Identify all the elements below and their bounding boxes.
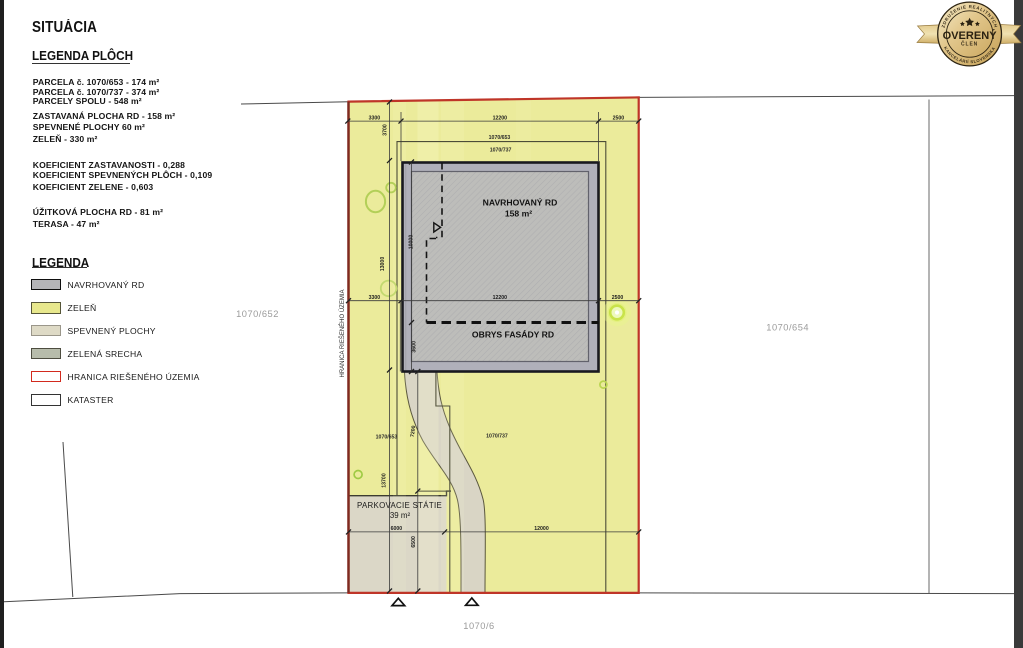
svg-text:1070/654: 1070/654 (766, 322, 809, 332)
svg-text:1070/737: 1070/737 (486, 433, 508, 439)
svg-text:PARKOVACIE STÁTIE: PARKOVACIE STÁTIE (357, 501, 442, 510)
svg-text:39 m²: 39 m² (390, 511, 411, 520)
svg-text:3300: 3300 (369, 295, 381, 301)
svg-text:12200: 12200 (493, 295, 508, 301)
svg-text:10000: 10000 (409, 235, 415, 250)
svg-text:HRANICA RIEŠENÉHO ÚZEMIA: HRANICA RIEŠENÉHO ÚZEMIA (339, 289, 346, 377)
svg-text:6000: 6000 (391, 526, 403, 532)
svg-text:13700: 13700 (382, 473, 388, 488)
svg-text:6500: 6500 (411, 536, 417, 548)
svg-text:3600: 3600 (411, 341, 417, 353)
svg-text:1070/6: 1070/6 (463, 621, 494, 631)
svg-text:NAVRHOVANÝ RD: NAVRHOVANÝ RD (483, 196, 558, 207)
svg-text:1070/737: 1070/737 (490, 147, 512, 153)
svg-text:ČLEN: ČLEN (961, 41, 978, 48)
svg-text:13000: 13000 (380, 257, 386, 272)
svg-text:1070/653: 1070/653 (489, 135, 511, 141)
svg-text:2500: 2500 (613, 115, 625, 121)
svg-text:OVERENÝ: OVERENÝ (943, 29, 997, 42)
svg-text:2500: 2500 (612, 295, 624, 301)
svg-text:OBRYS FASÁDY RD: OBRYS FASÁDY RD (472, 330, 554, 340)
svg-text:3300: 3300 (369, 115, 381, 121)
svg-text:12000: 12000 (534, 526, 549, 532)
svg-text:12200: 12200 (493, 115, 508, 121)
svg-text:1070/653: 1070/653 (376, 435, 398, 441)
svg-text:1070/652: 1070/652 (236, 309, 279, 319)
svg-text:3700: 3700 (383, 124, 389, 136)
svg-text:158 m²: 158 m² (505, 208, 532, 218)
